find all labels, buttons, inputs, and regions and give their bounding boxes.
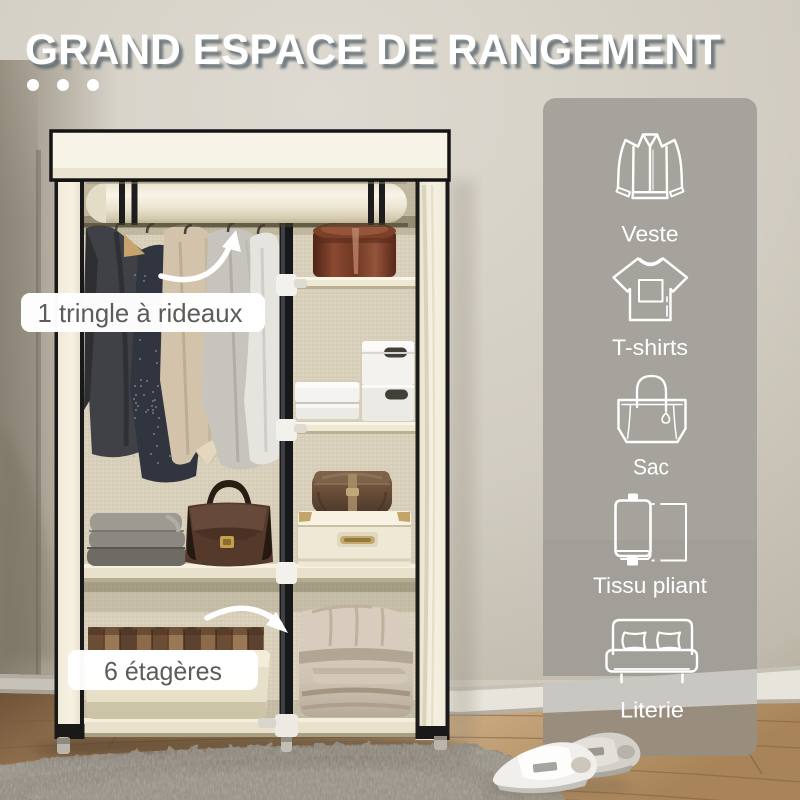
svg-text:Sac: Sac — [633, 455, 669, 480]
svg-text:6 étagères: 6 étagères — [104, 656, 222, 686]
svg-text:Literie: Literie — [620, 698, 684, 723]
svg-text:T-shirts: T-shirts — [612, 335, 688, 360]
svg-text:1 tringle à rideaux: 1 tringle à rideaux — [38, 298, 243, 328]
svg-text:Tissu pliant: Tissu pliant — [593, 573, 708, 598]
svg-text:Veste: Veste — [622, 222, 679, 247]
svg-text:GRAND ESPACE DE RANGEMENT: GRAND ESPACE DE RANGEMENT — [25, 26, 721, 74]
